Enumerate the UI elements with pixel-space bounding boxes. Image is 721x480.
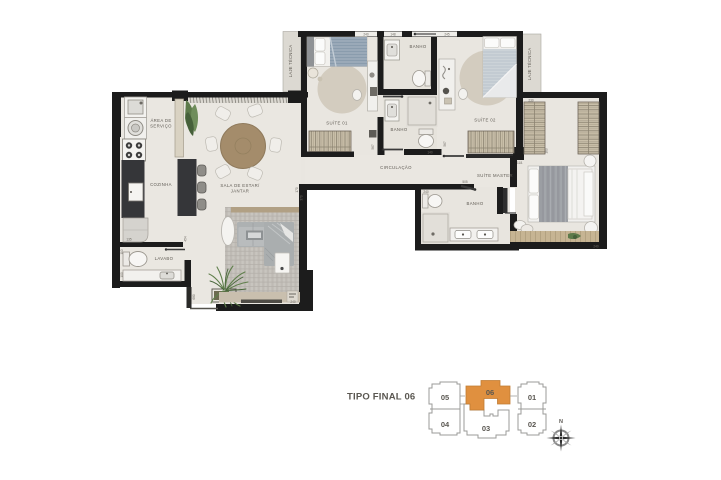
svg-text:170: 170 (295, 187, 299, 193)
svg-text:SUÍTE 01: SUÍTE 01 (326, 121, 348, 126)
svg-text:148: 148 (390, 33, 396, 37)
svg-text:567: 567 (371, 144, 375, 150)
svg-text:140: 140 (427, 151, 433, 155)
svg-text:240: 240 (423, 190, 429, 194)
svg-text:680: 680 (192, 294, 196, 300)
svg-text:03: 03 (482, 424, 490, 433)
svg-text:CIRCULAÇÃO: CIRCULAÇÃO (380, 165, 412, 170)
svg-text:160: 160 (545, 148, 549, 154)
svg-text:ÁREA DE: ÁREA DE (150, 118, 171, 123)
svg-text:230: 230 (528, 99, 534, 103)
svg-text:LAJE TÉCNICA: LAJE TÉCNICA (288, 45, 293, 78)
svg-text:COZINHA: COZINHA (150, 182, 172, 187)
svg-text:567: 567 (443, 141, 447, 147)
svg-text:245: 245 (444, 33, 450, 37)
svg-text:100: 100 (120, 272, 124, 278)
svg-text:SUÍTE 02: SUÍTE 02 (474, 118, 496, 123)
svg-text:02: 02 (528, 420, 536, 429)
svg-text:240: 240 (363, 33, 369, 37)
svg-text:JANTAR: JANTAR (231, 189, 250, 194)
svg-text:TIPO FINAL 06: TIPO FINAL 06 (347, 392, 415, 403)
svg-text:135: 135 (126, 238, 132, 242)
svg-text:240: 240 (593, 245, 599, 249)
svg-text:N: N (559, 419, 563, 425)
svg-text:SALA DE ESTAR/: SALA DE ESTAR/ (220, 183, 260, 188)
svg-text:370: 370 (300, 195, 304, 201)
svg-text:505: 505 (462, 180, 468, 184)
svg-text:454: 454 (184, 236, 188, 242)
svg-text:BANHO: BANHO (409, 44, 426, 49)
svg-text:BANHO: BANHO (466, 201, 483, 206)
svg-text:118.: 118. (517, 161, 523, 165)
svg-text:SUÍTE MASTER: SUÍTE MASTER (477, 173, 513, 178)
svg-text:110: 110 (120, 249, 124, 254)
svg-text:LAVABO: LAVABO (155, 256, 174, 261)
svg-text:BANHO: BANHO (390, 127, 407, 132)
svg-text:240: 240 (290, 300, 296, 304)
svg-text:LAJE TÉCNICA: LAJE TÉCNICA (527, 48, 532, 81)
svg-text:04: 04 (441, 420, 450, 429)
svg-text:01: 01 (528, 393, 536, 402)
svg-text:06: 06 (486, 388, 494, 397)
svg-text:SERVIÇO: SERVIÇO (150, 124, 172, 129)
svg-text:05: 05 (441, 393, 449, 402)
